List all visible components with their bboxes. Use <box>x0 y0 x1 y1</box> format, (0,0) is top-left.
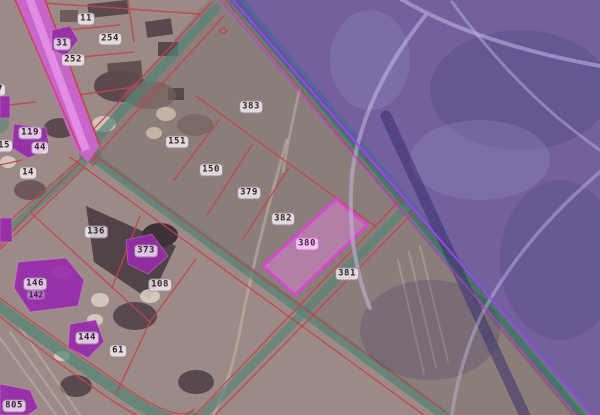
parcel-label-380[interactable]: 380 <box>295 238 319 251</box>
map-viewport[interactable]: 7113125425211944151413637310814614214461… <box>0 0 600 415</box>
parcel-label-61[interactable]: 61 <box>109 345 127 358</box>
parcel-label-15[interactable]: 15 <box>0 140 13 153</box>
map-canvas[interactable] <box>0 0 600 415</box>
parcel-label-11[interactable]: 11 <box>77 13 95 26</box>
parcel-label-31[interactable]: 31 <box>53 38 71 51</box>
parcel-label-151[interactable]: 151 <box>165 136 189 149</box>
parcel-label-254[interactable]: 254 <box>98 33 122 46</box>
parcel-label-44[interactable]: 44 <box>31 142 49 155</box>
parcel-label-142[interactable]: 142 <box>27 291 45 300</box>
parcel-label-150[interactable]: 150 <box>199 164 223 177</box>
parcel-label-382[interactable]: 382 <box>271 213 295 226</box>
parcel-label-119[interactable]: 119 <box>18 127 42 140</box>
parcel-label-373[interactable]: 373 <box>134 245 158 258</box>
parcel-label-144[interactable]: 144 <box>75 332 99 345</box>
parcel-label-383[interactable]: 383 <box>239 101 263 114</box>
parcel-label-252[interactable]: 252 <box>61 54 85 67</box>
parcel-label-805[interactable]: 805 <box>2 400 26 413</box>
parcel-label-7[interactable]: 7 <box>0 84 6 97</box>
parcel-label-108[interactable]: 108 <box>148 279 172 292</box>
parcel-label-14[interactable]: 14 <box>19 167 37 180</box>
parcel-label-381[interactable]: 381 <box>335 268 359 281</box>
parcel-label-379[interactable]: 379 <box>237 187 261 200</box>
parcel-label-136[interactable]: 136 <box>84 226 108 239</box>
parcel-label-146[interactable]: 146 <box>23 278 47 291</box>
